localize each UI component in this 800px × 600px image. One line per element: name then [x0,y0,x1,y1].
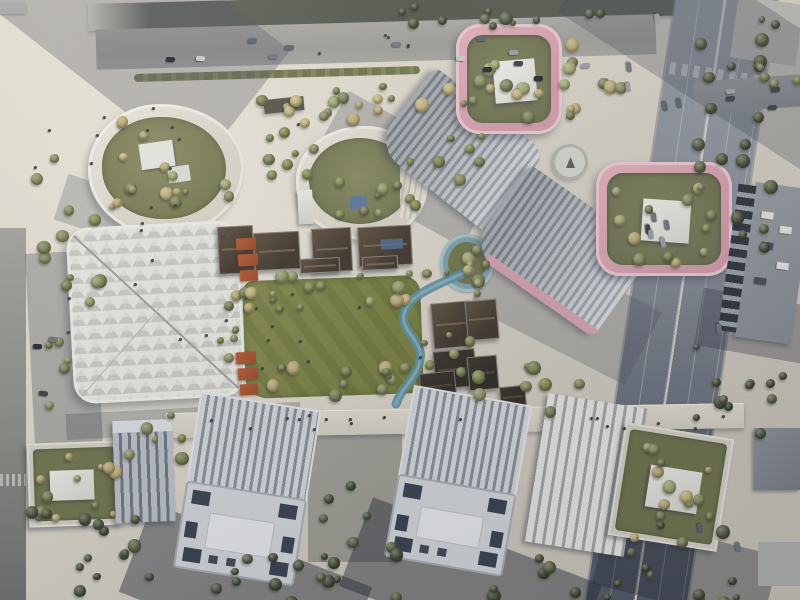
red-facade-box [236,351,257,364]
crown-vent [419,544,429,553]
heritage-roof [253,231,301,271]
slab-a-crown [173,480,307,586]
podium-west-skylight [138,140,175,170]
crown-block [393,536,413,553]
heritage-roof [300,257,341,274]
crown-block [191,490,211,507]
crown-block [281,536,295,554]
tower-north-roof-pavilion [492,58,538,104]
glass-canopy [350,195,368,209]
ribbed-west-roof-cap [112,419,172,433]
aerial-rendering-stage [0,0,800,600]
garden-roof-building-east [608,422,734,552]
southeast-building-block [754,428,800,490]
roof-ridge [366,262,395,265]
crown-block [395,514,410,532]
rooftop-unit [761,211,774,220]
crown-center-panel [416,506,485,549]
garden-east-pavilion [645,465,703,515]
crown-block [478,551,498,568]
west-crosswalk [0,474,26,486]
crown-vent [208,555,218,564]
rooftop-unit [754,277,767,286]
logo-mark [566,157,575,168]
roof-ridge [503,395,523,399]
tower-east-pink-roof-frame [596,162,732,276]
crown-block [489,531,504,549]
crown-block [184,521,198,539]
roof-ridge [258,249,295,253]
crown-block [402,483,422,500]
red-facade-box [238,367,259,380]
crown-block [269,561,289,578]
southeast-building-block-2 [758,542,800,586]
crown-block [278,503,298,520]
rooftop-unit [776,262,789,271]
crown-block [182,547,202,564]
tower-east-roof-pavilion [641,198,692,243]
heritage-white-tower [297,190,314,225]
garden-west-pavilion [50,469,95,501]
podium-west-roof-garden [102,117,226,219]
crown-center-panel [204,512,275,558]
roof-ridge [304,264,336,268]
red-facade-box [236,237,257,250]
circular-logo-plaza [552,144,588,180]
garden-roof-building-west [27,440,124,527]
crown-vent [226,558,236,567]
red-facade-box [240,384,259,396]
rooftop-unit [761,241,774,250]
cropped-structure-nw [0,2,26,14]
red-facade-box [240,270,259,282]
roof-ridge [316,247,348,251]
glass-canopy-2 [381,238,403,249]
tower-north-pink-roof-frame [456,24,562,134]
west-sidewalk-strip [0,228,26,600]
crown-vent [437,548,447,557]
rooftop-unit [779,226,792,235]
podium-west-skylight-2 [167,165,191,184]
crown-block [487,498,507,515]
northeast-pavement [730,0,800,66]
red-facade-box [238,253,259,266]
ribbed-building-west [112,419,176,523]
